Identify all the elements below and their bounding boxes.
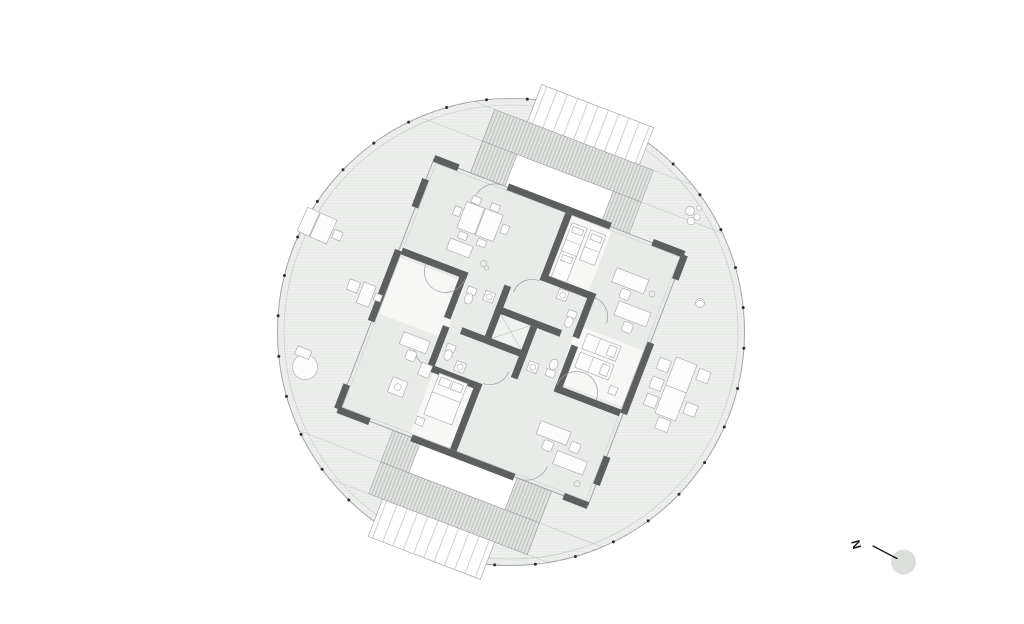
perimeter-dot [445,106,448,109]
perimeter-dot [742,347,745,350]
floor-plan-canvas: N [0,0,1024,624]
north-indicator: N [848,539,916,575]
perimeter-dot [321,468,324,471]
perimeter-dot [534,563,537,566]
perimeter-dot [526,98,529,101]
north-label: N [848,539,864,551]
perimeter-dot [277,314,280,317]
perimeter-dot [703,461,706,464]
perimeter-dot [285,395,288,398]
floor-plan-page: N [0,0,1024,624]
perimeter-dot [647,519,650,522]
perimeter-dot [723,426,726,429]
perimeter-dot [342,168,345,171]
perimeter-dot [283,274,286,277]
perimeter-dot [736,387,739,390]
perimeter-dot [277,355,280,358]
perimeter-dot [372,142,375,145]
perimeter-dot [574,555,577,558]
perimeter-dot [316,200,319,203]
perimeter-dot [678,493,681,496]
perimeter-dot [742,306,745,309]
north-disc [891,550,916,575]
perimeter-dot [719,228,722,231]
perimeter-dot [300,433,303,436]
perimeter-dot [734,266,737,269]
perimeter-dot [407,121,410,124]
perimeter-dot [612,540,615,543]
perimeter-dot [493,563,496,566]
perimeter-dot [296,236,299,239]
north-line [873,546,897,559]
perimeter-dot [347,499,350,502]
perimeter-dot [698,193,701,196]
plant-icon [696,299,705,308]
perimeter-dot [672,163,675,166]
perimeter-dot [485,98,488,101]
